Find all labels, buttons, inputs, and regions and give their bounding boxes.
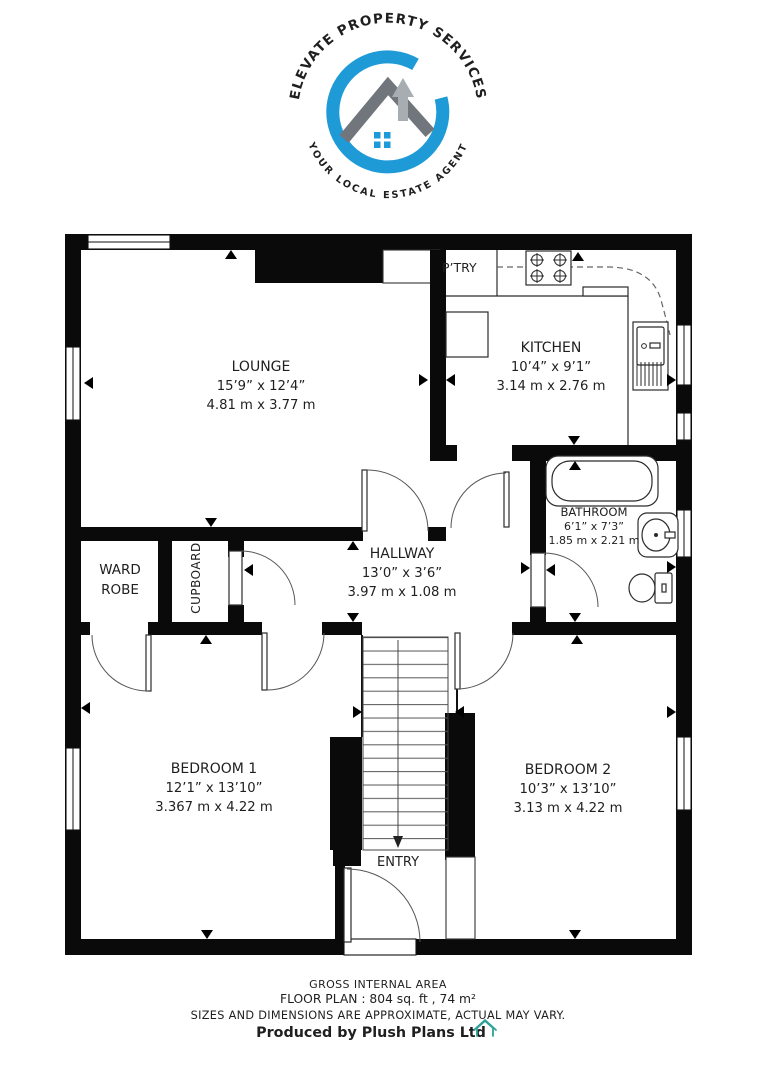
- window: [88, 235, 170, 249]
- footer-floor-plan-area: FLOOR PLAN : 804 sq. ft , 74 m²: [280, 992, 476, 1006]
- window: [66, 347, 80, 420]
- window: [677, 413, 691, 440]
- bathroom-door: [531, 553, 598, 607]
- lounge-door: [362, 470, 428, 531]
- lounge-imperial: 15’9” x 12’4”: [217, 379, 306, 394]
- footer-disclaimer: SIZES AND DIMENSIONS ARE APPROXIMATE, AC…: [191, 1009, 566, 1022]
- kitchen-label: KITCHEN 10’4” x 9’1” 3.14 m x 2.76 m: [497, 340, 606, 394]
- kitchen-door: [451, 472, 509, 528]
- bedroom2-imperial: 10’3” x 13’10”: [520, 782, 617, 797]
- kitchen-imperial: 10’4” x 9’1”: [511, 360, 591, 375]
- wardrobe-line1: WARD: [99, 562, 141, 578]
- bedroom1-metric: 3.367 m x 4.22 m: [155, 800, 272, 815]
- elevate-logo: ELEVATE PROPERTY SERVICES YOUR LOCAL EST…: [287, 11, 489, 201]
- floor-plan-canvas: ELEVATE PROPERTY SERVICES YOUR LOCAL EST…: [0, 0, 757, 1080]
- floor-plan-page: ELEVATE PROPERTY SERVICES YOUR LOCAL EST…: [0, 0, 757, 1080]
- bedroom1-label: BEDROOM 1 12’1” x 13’10” 3.367 m x 4.22 …: [155, 761, 272, 815]
- kitchen-name: KITCHEN: [521, 340, 582, 356]
- sink-icon: [638, 513, 678, 557]
- bedroom1-name: BEDROOM 1: [171, 761, 257, 777]
- bathroom-metric: 1.85 m x 2.21 m: [549, 534, 640, 547]
- footer-gross-area: GROSS INTERNAL AREA: [309, 978, 447, 991]
- pantry-label: P’TRY: [442, 260, 477, 275]
- footer: GROSS INTERNAL AREA FLOOR PLAN : 804 sq.…: [191, 978, 566, 1041]
- boiler-icon: [633, 322, 668, 390]
- kitchen-sink-ledge: [583, 287, 628, 296]
- wardrobe-door: [92, 635, 151, 691]
- entry-door: [344, 868, 420, 955]
- hallway-imperial: 13’0” x 3’6”: [362, 566, 442, 581]
- footer-producer: Produced by Plush Plans Ltd: [256, 1025, 486, 1041]
- window: [677, 737, 691, 810]
- cupboard-label: CUPBOARD: [189, 542, 203, 613]
- wardrobe-label: WARD ROBE: [99, 562, 141, 598]
- hallway-cupboard-door: [229, 551, 295, 605]
- lounge-label: LOUNGE 15’9” x 12’4” 4.81 m x 3.77 m: [207, 359, 316, 413]
- toilet-icon: [629, 573, 672, 603]
- hallway-metric: 3.97 m x 1.08 m: [348, 585, 457, 600]
- logo-windows: [374, 132, 391, 148]
- stove-icon: [526, 251, 571, 285]
- bathroom-name: BATHROOM: [560, 505, 627, 519]
- bedroom2-label: BEDROOM 2 10’3” x 13’10” 3.13 m x 4.22 m: [514, 762, 623, 816]
- bedroom2-name: BEDROOM 2: [525, 762, 611, 778]
- wardrobe-line2: ROBE: [101, 582, 139, 598]
- house-arrow-icon: [344, 78, 430, 148]
- bathroom-label: BATHROOM 6’1” x 7’3” 1.85 m x 2.21 m: [549, 505, 640, 547]
- hallway-label: HALLWAY 13’0” x 3’6” 3.97 m x 1.08 m: [348, 546, 457, 600]
- staircase: [363, 637, 448, 850]
- hallway-name: HALLWAY: [370, 546, 435, 562]
- bathroom-imperial: 6’1” x 7’3”: [564, 520, 624, 533]
- bedroom2-door: [455, 633, 513, 689]
- kitchen-metric: 3.14 m x 2.76 m: [497, 379, 606, 394]
- lounge-name: LOUNGE: [232, 359, 291, 375]
- bedroom2-metric: 3.13 m x 4.22 m: [514, 801, 623, 816]
- window: [677, 510, 691, 557]
- logo-ring: [333, 57, 443, 167]
- window: [677, 325, 691, 385]
- entry-label: ENTRY: [377, 855, 419, 870]
- lounge-metric: 4.81 m x 3.77 m: [207, 398, 316, 413]
- bathtub-icon: [546, 456, 658, 506]
- window: [66, 748, 80, 830]
- bedroom1-door: [262, 633, 324, 690]
- fridge-icon: [446, 312, 488, 357]
- bedroom1-imperial: 12’1” x 13’10”: [166, 781, 263, 796]
